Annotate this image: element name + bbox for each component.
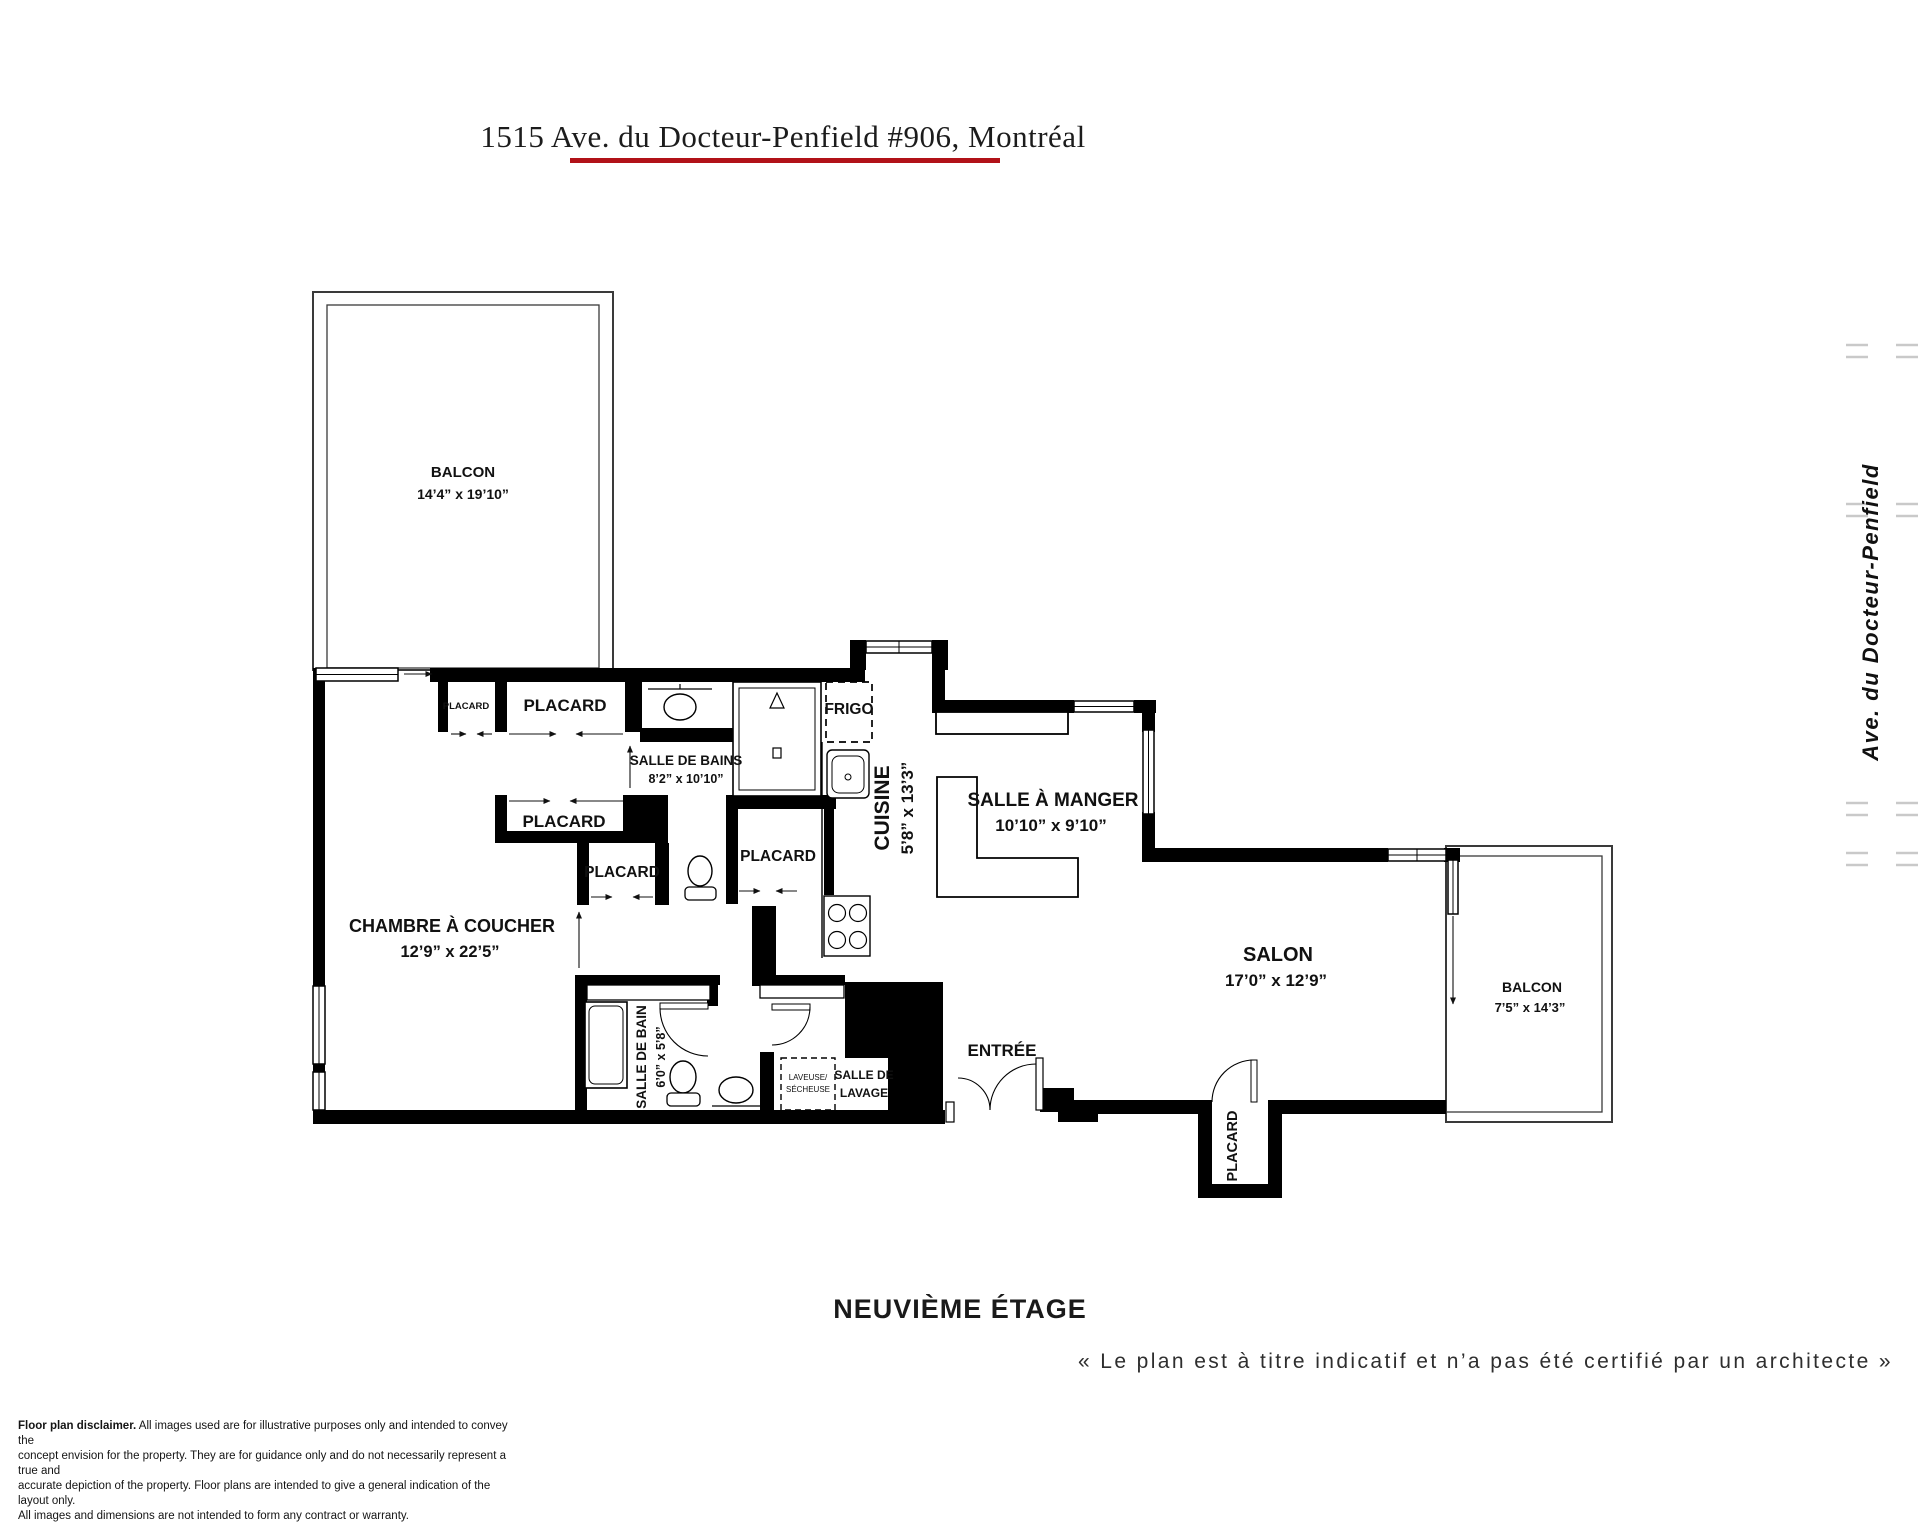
bath-toilet bbox=[667, 1061, 700, 1106]
dining-counter bbox=[936, 712, 1068, 734]
dims-salle-de-bains: 8’2” x 10’10” bbox=[648, 772, 723, 786]
label-placard-wc: PLACARD bbox=[740, 848, 816, 865]
kitchen-sink bbox=[827, 750, 869, 798]
dims-balcon-top: 14’4” x 19’10” bbox=[417, 486, 509, 502]
disclaimer: Floor plan disclaimer. All images used a… bbox=[18, 1419, 518, 1524]
dims-salon: 17’0” x 12’9” bbox=[1225, 971, 1327, 990]
label-laveuse-1: LAVEUSE/ bbox=[789, 1073, 828, 1082]
washer-dryer-box bbox=[781, 1058, 835, 1110]
disclaimer-line-4: All images and dimensions are not intend… bbox=[18, 1509, 518, 1524]
balcony-door-top-left bbox=[316, 668, 398, 681]
label-salle-de-bains: SALLE DE BAINS bbox=[630, 753, 743, 768]
wc-toilet bbox=[685, 856, 716, 900]
dims-chambre: 12’9” x 22’5” bbox=[400, 943, 499, 961]
label-placard-top: PLACARD bbox=[523, 696, 606, 715]
disclaimer-lead: Floor plan disclaimer. bbox=[18, 1420, 136, 1432]
dining-east-window bbox=[1143, 730, 1154, 814]
salon-window bbox=[1388, 849, 1446, 861]
hall-sink bbox=[712, 1077, 768, 1106]
shower bbox=[733, 682, 821, 796]
entry-double-doors bbox=[946, 1058, 1043, 1122]
laundry-door-header bbox=[760, 985, 844, 998]
dining-window bbox=[1074, 701, 1134, 712]
label-salle-a-manger: SALLE À MANGER bbox=[968, 789, 1139, 811]
vanity-sink bbox=[648, 684, 712, 720]
label-chambre: CHAMBRE À COUCHER bbox=[349, 915, 555, 936]
label-salon: SALON bbox=[1243, 944, 1313, 966]
label-balcon-top: BALCON bbox=[431, 464, 495, 481]
kitchen-window bbox=[866, 641, 932, 653]
label-placard-mid: PLACARD bbox=[522, 812, 605, 831]
dims-cuisine: 5’8” x 13’3” bbox=[898, 762, 917, 855]
bedroom-window-2 bbox=[313, 1072, 325, 1110]
bath-door-header bbox=[587, 985, 710, 1000]
street-label: Ave. du Docteur-Penfield bbox=[1858, 463, 1883, 762]
bathtub bbox=[585, 1002, 627, 1088]
disclaimer-line-3: accurate depiction of the property. Floo… bbox=[18, 1479, 518, 1509]
disclaimer-line-2: concept envision for the property. They … bbox=[18, 1449, 518, 1479]
label-balcon-right: BALCON bbox=[1502, 979, 1562, 995]
dims-salle-de-bain: 6’0” x 5’8” bbox=[654, 1026, 668, 1087]
balcony-right-door-panel bbox=[1448, 860, 1458, 914]
floor-plan: Ave. du Docteur-Penfield bbox=[0, 0, 1920, 1483]
label-entree: ENTRÉE bbox=[968, 1041, 1037, 1060]
dims-balcon-right: 7’5” x 14’3” bbox=[1495, 1000, 1566, 1015]
label-placard-entree: PLACARD bbox=[1225, 1111, 1241, 1182]
floor-label: NEUVIÈME ÉTAGE bbox=[0, 1294, 1920, 1325]
label-laveuse-2: SÉCHEUSE bbox=[786, 1085, 830, 1094]
bedroom-window-1 bbox=[313, 986, 325, 1064]
label-frigo: FRIGO bbox=[824, 701, 873, 718]
architect-notice: « Le plan est à titre indicatif et n’a p… bbox=[1078, 1350, 1893, 1374]
label-salle-de-bain: SALLE DE BAIN bbox=[634, 1005, 649, 1109]
disclaimer-line-1: Floor plan disclaimer. All images used a… bbox=[18, 1419, 518, 1449]
label-lavage-2: LAVAGE bbox=[840, 1086, 888, 1100]
laundry-door bbox=[772, 1004, 810, 1045]
label-placard-mid2: PLACARD bbox=[584, 864, 660, 881]
label-cuisine: CUISINE bbox=[871, 765, 894, 850]
street-docteur-penfield: Ave. du Docteur-Penfield bbox=[1846, 345, 1918, 865]
label-placard-small: PLACARD bbox=[443, 701, 490, 712]
label-lavage-1: SALLE DE bbox=[834, 1068, 893, 1082]
entry-closet-door bbox=[1212, 1060, 1257, 1102]
dims-salle-a-manger: 10’10” x 9’10” bbox=[995, 816, 1107, 835]
stove bbox=[824, 896, 870, 956]
balcony-top-left bbox=[313, 292, 613, 670]
